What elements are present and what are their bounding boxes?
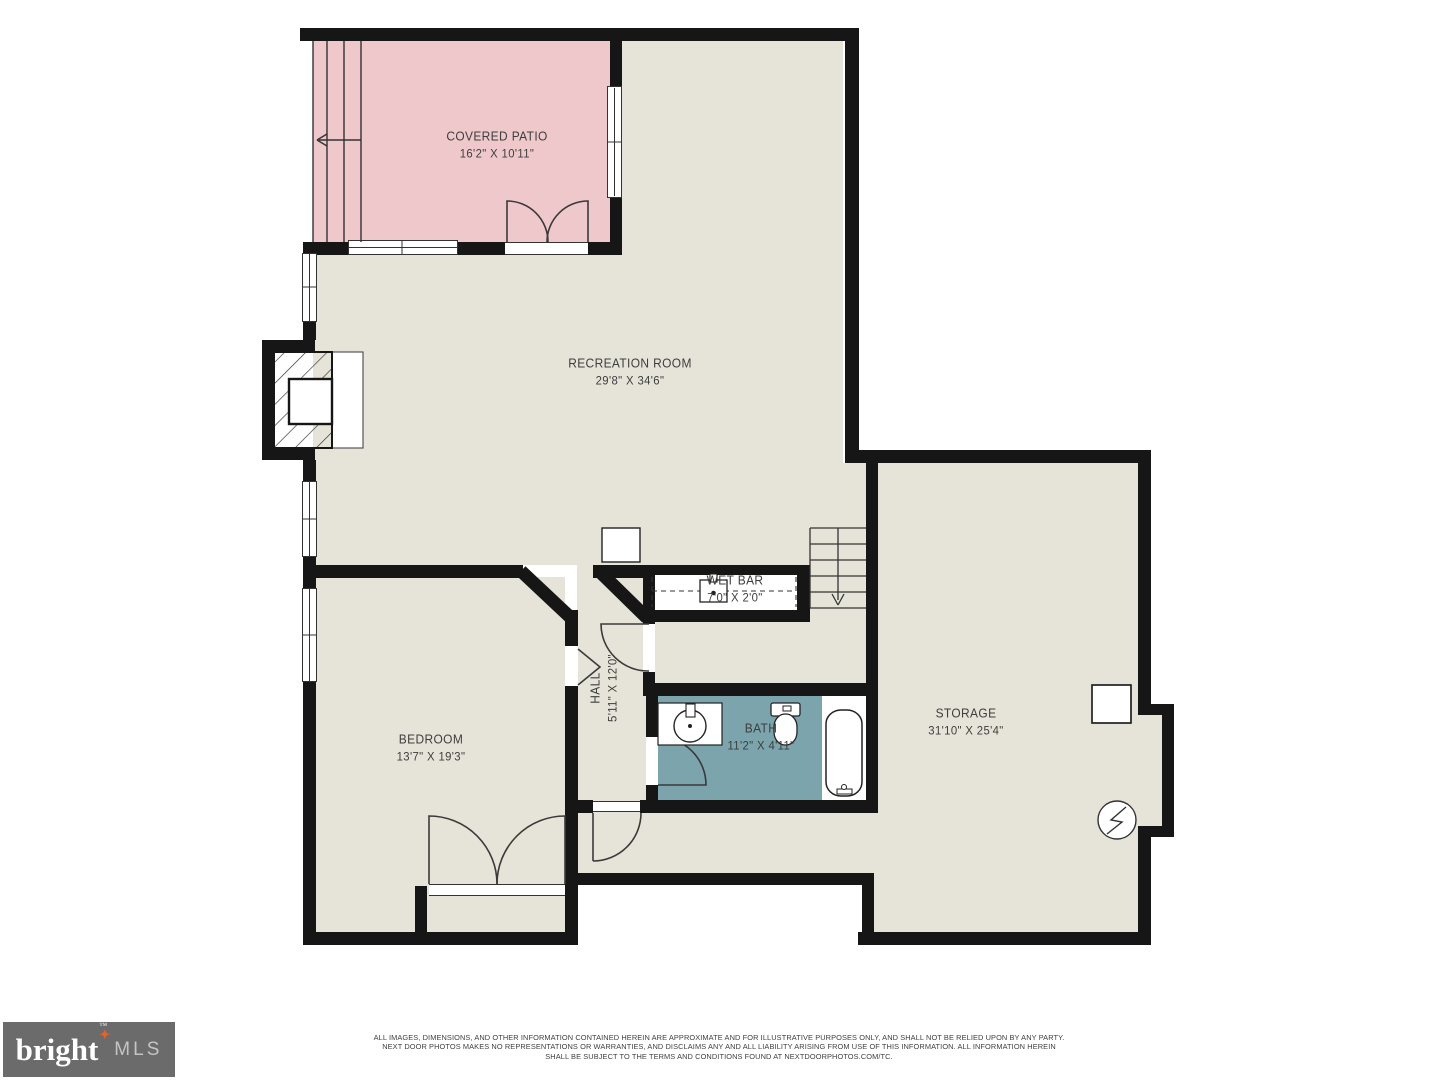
room-name: BATH [727, 720, 794, 738]
room-dims: 5'11" X 12'0" [604, 654, 622, 722]
room-dims: 7'0" X 2'0" [707, 589, 764, 607]
cabinet-box-icon [602, 528, 640, 562]
logo-mls-text: MLS [114, 1039, 162, 1061]
disclaimer-line: ALL IMAGES, DIMENSIONS, AND OTHER INFORM… [369, 1033, 1069, 1042]
label-wet-bar: WET BAR 7'0" X 2'0" [707, 572, 764, 607]
bathtub-icon [826, 710, 862, 796]
room-name: BEDROOM [397, 731, 466, 749]
logo-tm: ™ [99, 1021, 107, 1030]
bath-sink-icon [658, 703, 722, 745]
label-bedroom: BEDROOM 13'7" X 19'3" [397, 731, 466, 766]
room-name: HALL [587, 654, 605, 722]
disclaimer: ALL IMAGES, DIMENSIONS, AND OTHER INFORM… [369, 1033, 1069, 1061]
floor-plan: COVERED PATIO 16'2" X 10'11" RECREATION … [0, 0, 1440, 1080]
stairs-down-icon [810, 528, 866, 608]
patio-steps-icon [313, 41, 361, 242]
label-covered-patio: COVERED PATIO 16'2" X 10'11" [446, 128, 547, 163]
diagonal-wall [521, 571, 647, 618]
room-dims: 11'2" X 4'11" [727, 737, 794, 755]
disclaimer-line: SHALL BE SUBJECT TO THE TERMS AND CONDIT… [369, 1052, 1069, 1061]
label-bath: BATH 11'2" X 4'11" [727, 720, 794, 755]
fireplace-icon [274, 352, 363, 448]
label-hall: HALL 5'11" X 12'0" [587, 654, 622, 722]
brightmls-logo: bright✦™ MLS [3, 1022, 175, 1077]
room-name: RECREATION ROOM [568, 355, 692, 373]
plan-symbols [0, 0, 1440, 1080]
logo-brand-text: bright✦™ [16, 1034, 108, 1065]
room-dims: 13'7" X 19'3" [397, 748, 466, 766]
room-dims: 31'10" X 25'4" [928, 722, 1003, 740]
room-name: STORAGE [928, 705, 1003, 723]
room-dims: 16'2" X 10'11" [446, 145, 547, 163]
label-storage: STORAGE 31'10" X 25'4" [928, 705, 1003, 740]
electrical-panel-icon [1098, 801, 1136, 839]
disclaimer-line: NEXT DOOR PHOTOS MAKES NO REPRESENTATION… [369, 1042, 1069, 1051]
room-dims: 29'8" X 34'6" [568, 372, 692, 390]
door-swing-arcs [429, 201, 706, 884]
room-name: WET BAR [707, 572, 764, 590]
room-name: COVERED PATIO [446, 128, 547, 146]
label-recreation-room: RECREATION ROOM 29'8" X 34'6" [568, 355, 692, 390]
utility-box-icon [1092, 685, 1131, 723]
